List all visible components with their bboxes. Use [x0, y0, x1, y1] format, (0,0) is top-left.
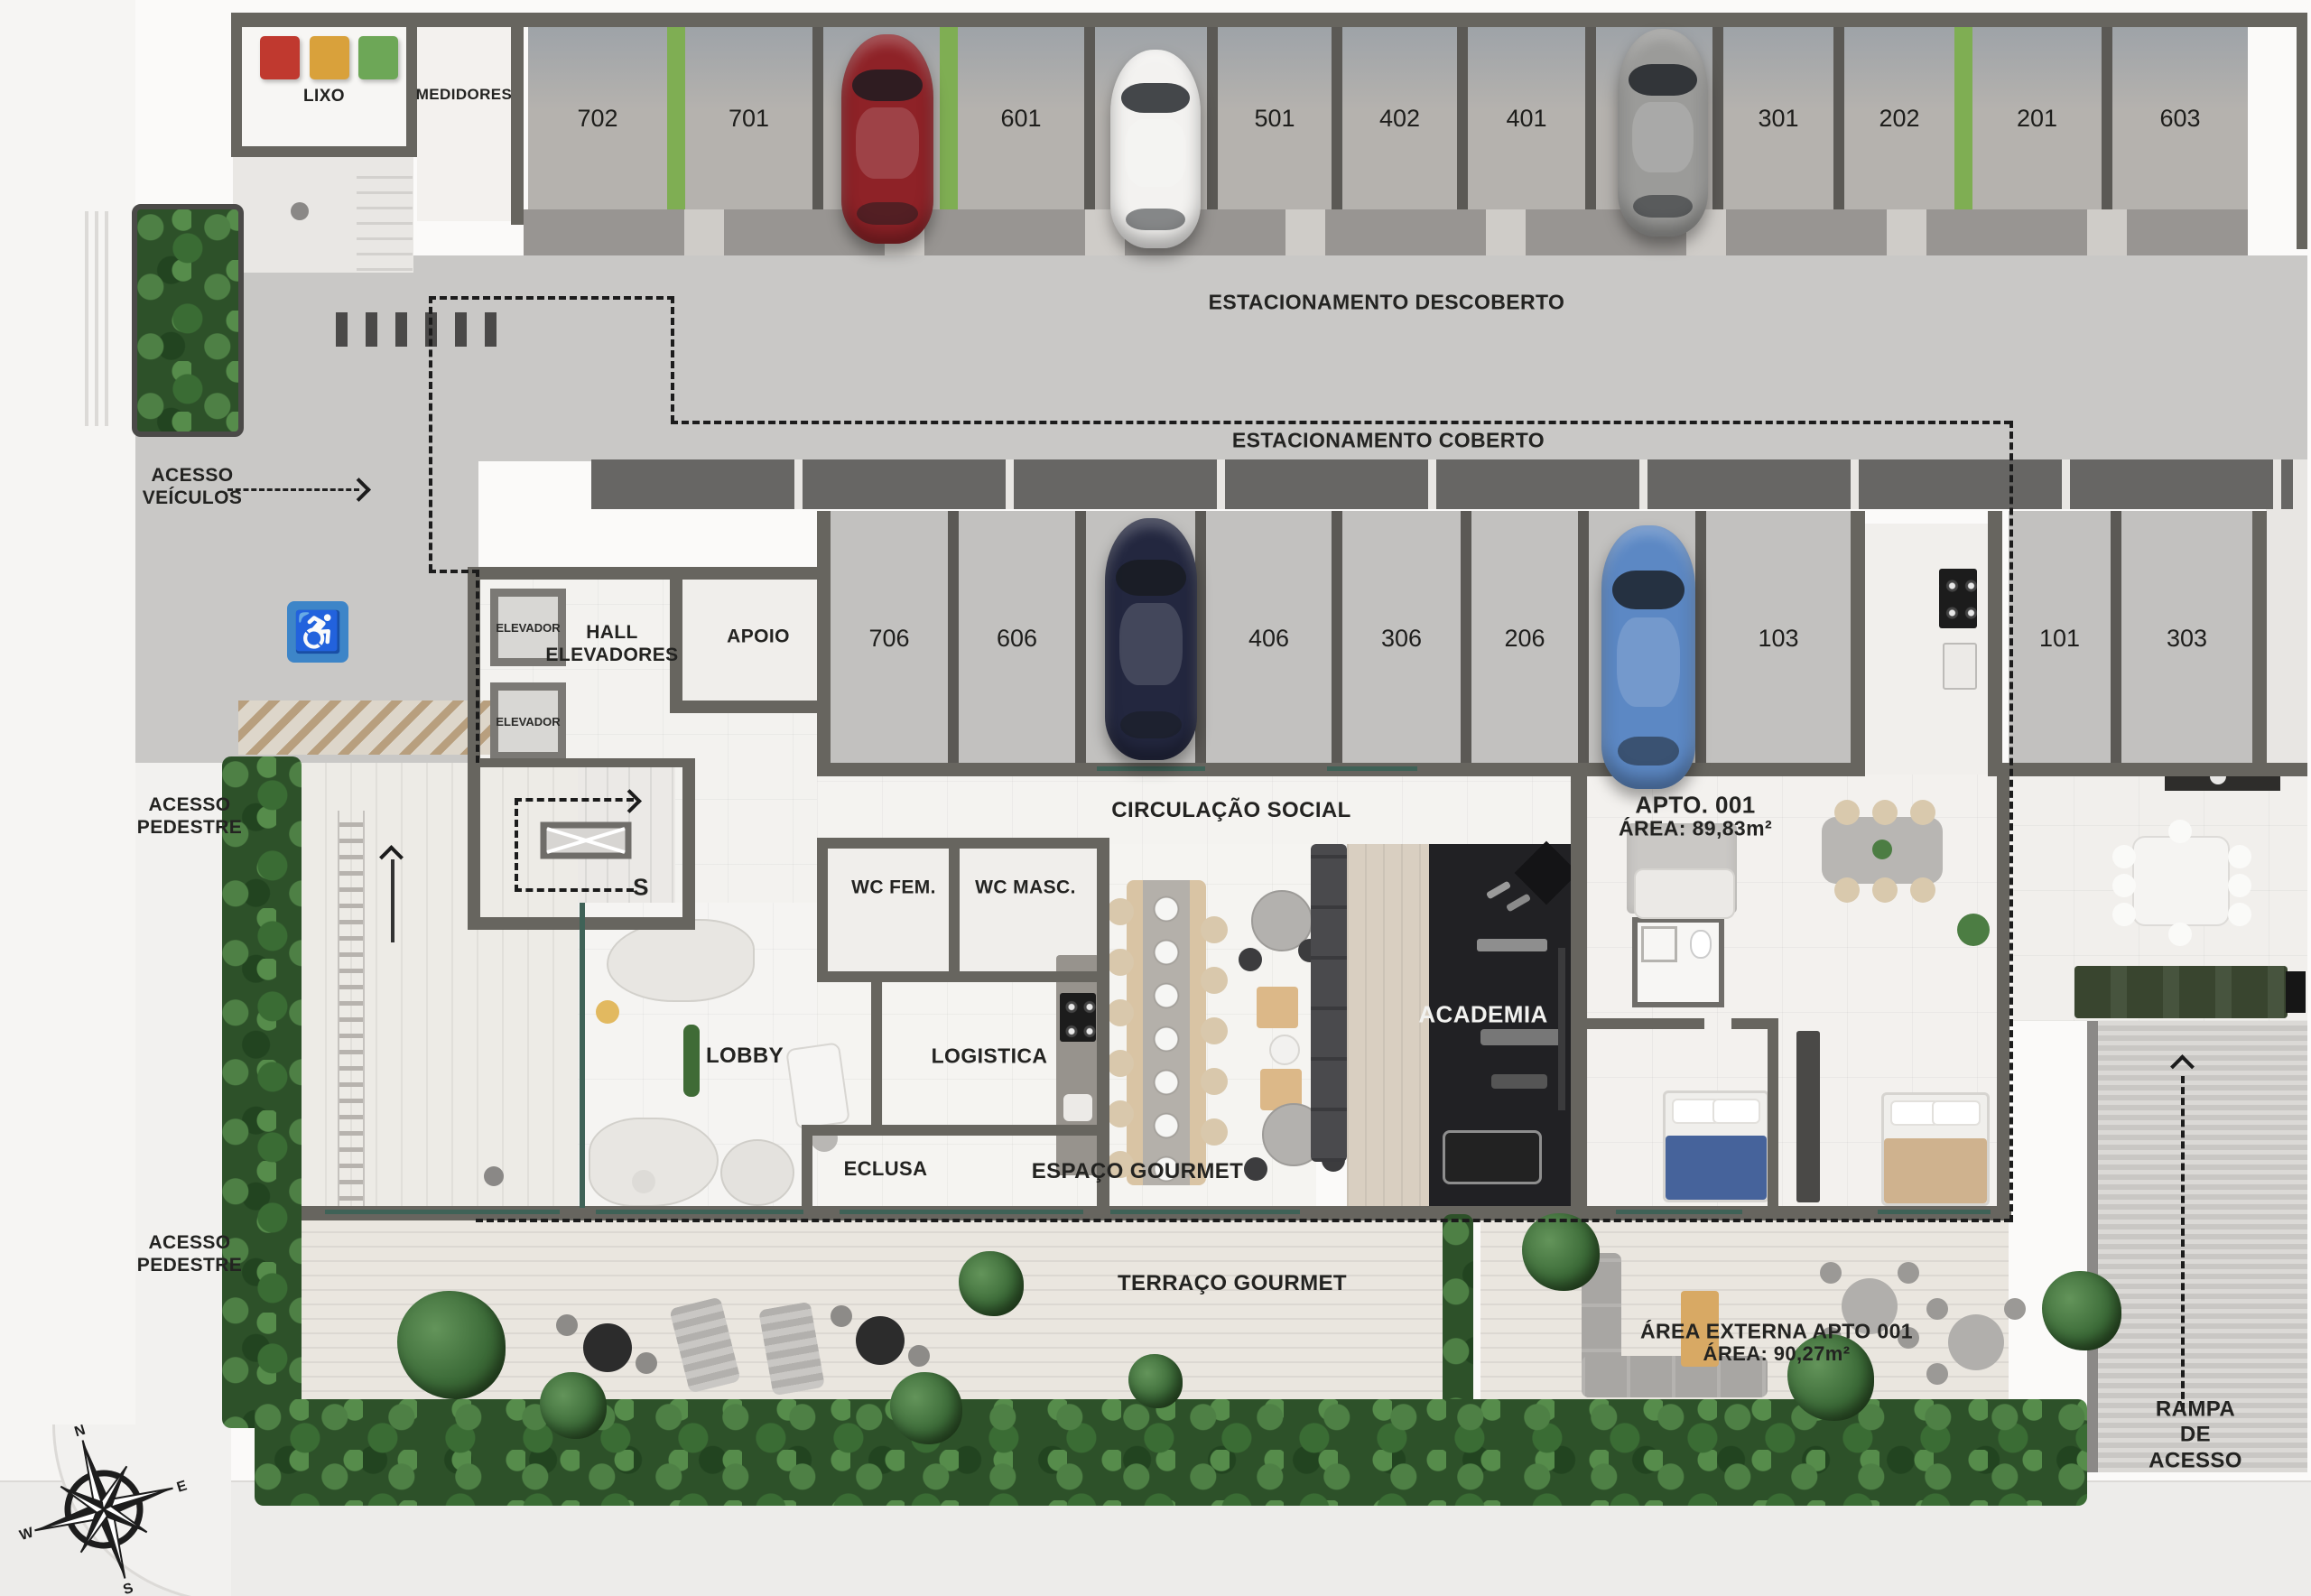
wall-gym-apartment	[1571, 766, 1587, 1217]
cafe-table-1	[1257, 987, 1298, 1028]
car-roof	[856, 107, 918, 179]
wall-wc-left	[817, 838, 828, 982]
gym-mirror	[1558, 948, 1565, 1110]
gym-bench	[1491, 1074, 1547, 1089]
wall-stairs-top	[468, 758, 695, 767]
label-eclusa: ECLUSA	[844, 1157, 928, 1181]
blanket-blue	[1666, 1136, 1767, 1200]
parking-space: 601	[958, 27, 1095, 209]
wall-corridor-top-right	[1988, 763, 2307, 776]
rear-window	[1120, 711, 1181, 738]
lobby-armchair	[720, 1139, 794, 1206]
island-cooktop	[1060, 993, 1096, 1042]
vehicle-arrow-line	[227, 488, 359, 491]
pillow	[1712, 1099, 1760, 1124]
apt-dining-chairs-bottom	[1834, 877, 1860, 903]
fridge	[1943, 643, 1977, 690]
glass-lobby-west	[580, 903, 585, 1208]
rear-window	[1126, 209, 1185, 230]
lobby-pouf-white	[632, 1170, 655, 1193]
terrace-chair-bottom	[2168, 923, 2192, 946]
parking-space: 201	[1972, 27, 2112, 209]
property-line	[2009, 421, 2013, 1222]
terrace-divider-hedge	[1443, 1214, 1473, 1411]
space-number: 402	[1379, 105, 1420, 133]
hedge-left	[222, 756, 302, 1428]
label-lixo: LIXO	[303, 87, 345, 107]
wall-apoio-bottom	[670, 701, 831, 713]
tactile-paving	[338, 811, 365, 1217]
wall-core-top	[468, 567, 829, 580]
label-area-externa-area: ÁREA: 90,27m²	[1703, 1342, 1851, 1366]
label-estacionamento-descoberto: ESTACIONAMENTO DESCOBERTO	[1209, 290, 1565, 314]
service-stairs	[357, 164, 413, 271]
label-hall-elevadores: HALL ELEVADORES	[545, 622, 678, 667]
space-number: 702	[577, 105, 617, 133]
lixo-room	[231, 13, 417, 157]
space-number: 201	[2017, 105, 2057, 133]
label-acesso-veiculos: ACESSO VEÍCULOS	[143, 465, 243, 510]
space-number: 101	[2039, 625, 2080, 653]
parking-space: 206	[1471, 511, 1589, 766]
gym-rack	[1477, 939, 1547, 951]
space-number: 406	[1248, 625, 1289, 653]
compass-w: W	[18, 1525, 36, 1544]
label-acesso-pedestre-1: ACESSO PEDESTRE	[137, 794, 242, 840]
trash-bin-red	[260, 36, 300, 79]
bench-row	[1311, 844, 1347, 1162]
space-number: 706	[868, 625, 909, 653]
planter-top-left	[132, 204, 244, 437]
wall-wc-bottom	[817, 971, 1109, 982]
windshield	[1629, 64, 1697, 96]
parking-space: 103	[1706, 511, 1851, 766]
wall-right-edge-top	[2297, 13, 2307, 249]
space-number: 606	[997, 625, 1037, 653]
wardrobe	[1796, 1031, 1820, 1202]
label-medidores: MEDIDORES	[416, 86, 513, 104]
apt-plant	[1957, 914, 1990, 946]
glass-front-1	[325, 1210, 560, 1214]
wc-fem-floor	[817, 838, 949, 982]
windshield	[1116, 560, 1186, 596]
wall-covered-left	[817, 511, 831, 776]
parking-space: 701	[685, 27, 823, 209]
apt-dining-chairs-top	[1834, 800, 1860, 825]
space-number: 601	[1000, 105, 1041, 133]
curb-band	[524, 209, 2248, 255]
treadmill	[1443, 1130, 1542, 1184]
apt-table-plant	[1872, 840, 1892, 859]
banquet-chairs-right	[1201, 916, 1228, 943]
label-estacionamento-coberto: ESTACIONAMENTO COBERTO	[1232, 428, 1545, 452]
car-silver	[1618, 29, 1708, 237]
ground-floor-plan: 702 701 602 601 502 501 402 401 302 301 …	[0, 0, 2311, 1596]
parking-space: 303	[2121, 511, 2252, 766]
glass-front-6	[1878, 1210, 1991, 1214]
label-wc-masc: WC MASC.	[975, 877, 1076, 900]
covered-roof-beams	[591, 459, 2293, 509]
bush	[540, 1372, 607, 1439]
medidores-room	[417, 13, 511, 221]
property-line	[671, 296, 674, 422]
wall-eclusa-v	[802, 1125, 812, 1215]
compass-e: E	[175, 1478, 189, 1495]
car-red	[841, 34, 933, 244]
compass-s: S	[121, 1581, 135, 1596]
wall-apt-int-v	[1768, 1018, 1778, 1217]
car-roof	[1125, 119, 1186, 187]
space-number: 103	[1758, 625, 1798, 653]
patio-2-chairs	[1926, 1298, 1948, 1320]
parking-space: 101	[2009, 511, 2121, 766]
wall-top	[231, 13, 2300, 27]
walk-arrow-line	[391, 859, 394, 942]
parking-space: 702	[528, 27, 685, 209]
car-white	[1110, 50, 1201, 248]
parking-space: 401	[1468, 27, 1596, 209]
property-line	[429, 296, 674, 300]
parking-space: 603	[2112, 27, 2248, 209]
windshield	[1612, 571, 1684, 610]
compass-rose: N E S W	[14, 1419, 194, 1596]
car-roof	[1119, 603, 1182, 685]
round-table-2-chairs	[1244, 1157, 1267, 1181]
blanket-beige	[1884, 1138, 1987, 1203]
space-number: 206	[1504, 625, 1545, 653]
property-line	[429, 296, 432, 571]
wall-kitchen-right	[1988, 511, 2002, 776]
wall-lixo-left	[231, 13, 242, 157]
elevator-label: ELEVADOR	[496, 715, 560, 728]
parking-space: 202	[1844, 27, 1972, 209]
label-terraco-gourmet: TERRAÇO GOURMET	[1118, 1271, 1347, 1296]
reception-desk	[785, 1042, 850, 1129]
banquet-chairs-left	[1107, 898, 1134, 925]
wall-covered-right	[2252, 511, 2267, 766]
wall-stairs-right	[682, 766, 695, 930]
windshield	[852, 70, 923, 101]
trash-bin-green	[358, 36, 398, 79]
label-lobby: LOBBY	[706, 1044, 784, 1069]
bistro-2-chairs	[831, 1305, 852, 1327]
shower	[1641, 926, 1677, 962]
terrace-chairs-right	[2228, 845, 2251, 868]
wall-med-right	[511, 13, 524, 225]
bush	[1522, 1213, 1600, 1291]
elevator-2: ELEVADOR	[490, 682, 566, 760]
bush	[2042, 1271, 2121, 1350]
label-apoio: APOIO	[727, 626, 790, 649]
patio-table-2	[1948, 1314, 2004, 1370]
column-dot-lobby	[484, 1166, 504, 1186]
wall-logistica	[871, 982, 882, 1136]
toilet	[1690, 930, 1712, 959]
bistro-table-1	[583, 1323, 632, 1372]
driveway-upper	[135, 255, 2307, 461]
rear-window	[857, 202, 917, 226]
car-blue	[1601, 525, 1695, 789]
parking-space: 306	[1342, 511, 1471, 766]
sidewalk-left	[135, 763, 226, 1480]
car-roof	[1617, 617, 1681, 707]
space-number: 306	[1381, 625, 1422, 653]
parking-space: 406	[1206, 511, 1342, 766]
wall-apartment-right	[1997, 766, 2009, 1217]
wall-apt-int-h1	[1587, 1018, 1704, 1029]
label-acesso-pedestre-2: ACESSO PEDESTRE	[137, 1232, 242, 1277]
label-logistica: LOGISTICA	[932, 1044, 1048, 1068]
uncovered-parking-lot: 702 701 602 601 502 501 402 401 302 301 …	[528, 27, 2248, 209]
column-dot	[291, 202, 309, 220]
space-number: 401	[1506, 105, 1546, 133]
label-espaco-gourmet: ESPAÇO GOURMET	[1032, 1159, 1244, 1184]
bush	[1128, 1354, 1183, 1408]
bistro-table-2	[856, 1316, 905, 1365]
lobby-pouf-yellow	[596, 1000, 619, 1024]
kitchen-island	[1056, 955, 1100, 1175]
label-rampa-acesso: RAMPA DE ACESSO	[2138, 1397, 2253, 1474]
glass-front-5	[1616, 1210, 1742, 1214]
handicap-sign: ♿	[287, 601, 348, 663]
apt-bathroom	[1632, 917, 1724, 1007]
label-stair-s: S	[633, 874, 649, 902]
covered-parking-lot: 706 606 506 406 306 206 106 103	[831, 511, 1851, 766]
stair-core	[540, 821, 632, 859]
terrace-chairs-left	[2112, 845, 2136, 868]
label-area-externa: ÁREA EXTERNA APTO 001	[1640, 1319, 1913, 1343]
bush	[959, 1251, 1024, 1316]
label-circulacao-social: CIRCULAÇÃO SOCIAL	[1111, 798, 1350, 823]
gym-machine	[1480, 1029, 1564, 1045]
cooktop	[1939, 569, 1977, 628]
parking-space: 301	[1723, 27, 1844, 209]
property-line	[429, 570, 479, 573]
wall-lixo-bottom	[231, 146, 412, 157]
compass-n: N	[73, 1423, 88, 1441]
trash-bin-yellow	[310, 36, 349, 79]
wall-wc-mid	[949, 838, 960, 982]
planter-bench	[2074, 966, 2288, 1018]
space-number: 202	[1879, 105, 1919, 133]
bush	[890, 1372, 962, 1444]
space-number: 501	[1254, 105, 1295, 133]
car-navy	[1105, 518, 1197, 760]
zebra-crossing	[336, 312, 511, 347]
parking-space: 606	[959, 511, 1086, 766]
ramp-left-wall	[2087, 1021, 2098, 1472]
glass-corridor-1	[1097, 766, 1205, 771]
space-number: 303	[2167, 625, 2207, 653]
wall-kitchen-left	[1851, 511, 1865, 776]
bistro-1-chairs	[556, 1314, 578, 1336]
lobby-plant-strip	[683, 1025, 700, 1097]
pillow	[1932, 1100, 1981, 1126]
apt-sofa	[1634, 868, 1735, 919]
bed-1	[1663, 1090, 1769, 1202]
street-left	[0, 0, 135, 1596]
cafe-table-round	[1269, 1035, 1300, 1065]
terrace-table	[2132, 836, 2230, 926]
ramp-direction-dashed	[2181, 1076, 2185, 1410]
label-apto-001: APTO. 001	[1635, 792, 1755, 820]
space-number: 701	[729, 105, 769, 133]
terrace-chair-top	[2168, 820, 2192, 843]
parking-space: 402	[1342, 27, 1468, 209]
glass-corridor-2	[1327, 766, 1417, 771]
island-sink	[1063, 1094, 1092, 1121]
wall-wc-top	[817, 838, 1109, 849]
rear-window	[1633, 195, 1693, 218]
car-roof	[1632, 102, 1694, 172]
patio-1-chairs	[1820, 1262, 1842, 1284]
space-number: 603	[2159, 105, 2200, 133]
rear-window	[1618, 737, 1680, 766]
glass-front-4	[1110, 1210, 1300, 1214]
wheelchair-icon: ♿	[293, 608, 343, 655]
property-line	[671, 421, 2011, 424]
windshield	[1121, 83, 1190, 113]
facade-hatch	[85, 211, 110, 426]
space-number: 301	[1758, 105, 1798, 133]
label-apto-001-area: ÁREA: 89,83m²	[1619, 816, 1772, 840]
parking-space: 706	[831, 511, 959, 766]
glass-front-3	[840, 1210, 1083, 1214]
parking-space: 501	[1218, 27, 1342, 209]
grill-box	[2286, 971, 2306, 1013]
label-wc-fem: WC FEM.	[851, 877, 936, 900]
label-academia: ACADEMIA	[1418, 1001, 1547, 1029]
glass-front-2	[596, 1210, 803, 1214]
wall-eclusa-h	[802, 1125, 1101, 1136]
banquet-table-runner	[1143, 880, 1190, 1185]
bed-2	[1881, 1092, 1990, 1206]
property-line	[476, 570, 479, 763]
property-line	[476, 1219, 2011, 1222]
